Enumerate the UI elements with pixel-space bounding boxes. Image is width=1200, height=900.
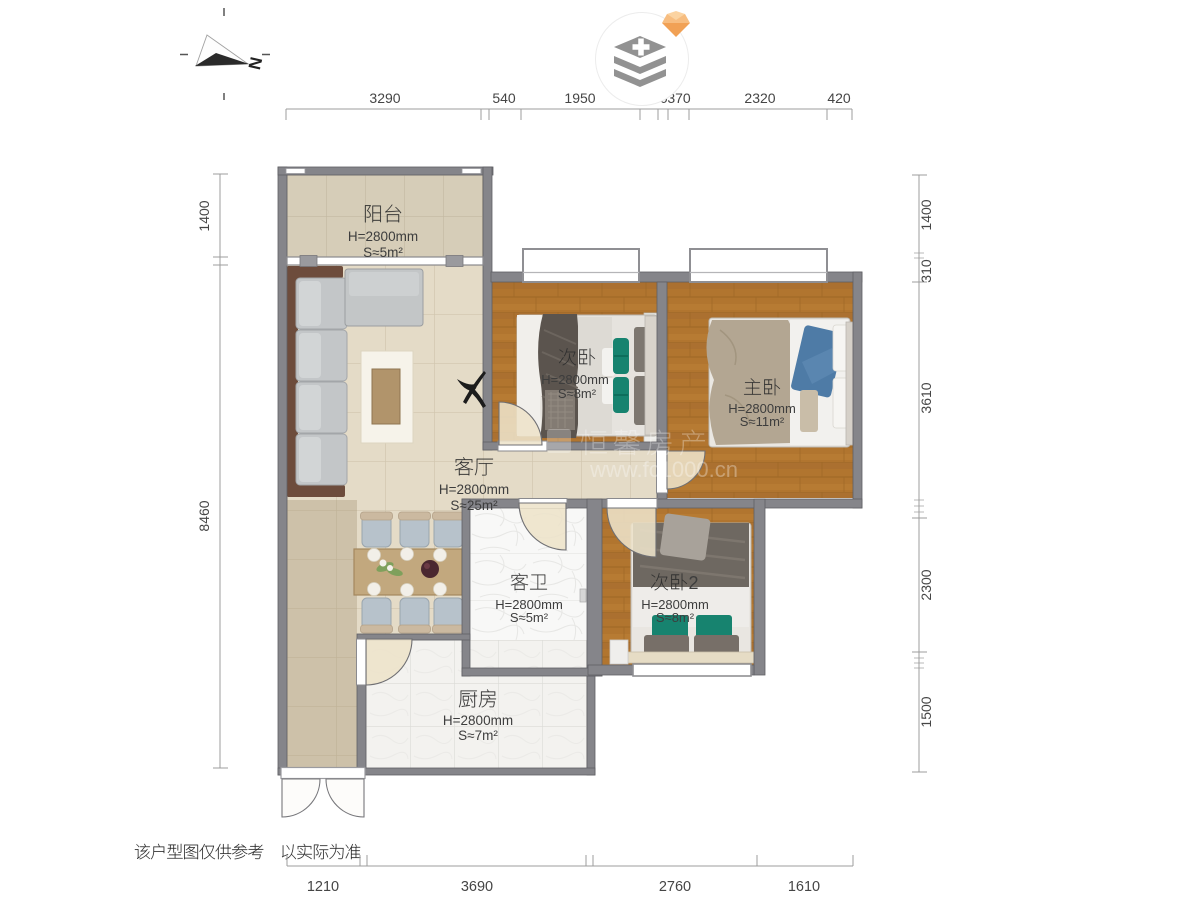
svg-text:www.fc1000.cn: www.fc1000.cn xyxy=(589,457,738,482)
svg-text:H=2800mm: H=2800mm xyxy=(348,229,418,244)
svg-text:2: 2 xyxy=(689,573,699,593)
svg-text:S≈25m²: S≈25m² xyxy=(450,498,498,513)
svg-text:S≈7m²: S≈7m² xyxy=(458,728,498,743)
svg-text:1610: 1610 xyxy=(788,879,820,895)
svg-text:3290: 3290 xyxy=(369,90,400,106)
svg-text:1400: 1400 xyxy=(196,200,212,231)
svg-text:2300: 2300 xyxy=(918,569,934,600)
svg-text:2760: 2760 xyxy=(659,879,691,895)
svg-text:2320: 2320 xyxy=(744,90,775,106)
svg-text:420: 420 xyxy=(827,90,851,106)
svg-text:1500: 1500 xyxy=(918,696,934,727)
svg-text:H=2800mm: H=2800mm xyxy=(541,372,609,387)
svg-text:3690: 3690 xyxy=(461,879,493,895)
svg-text:S≈5m²: S≈5m² xyxy=(510,610,549,625)
svg-text:S≈8m²: S≈8m² xyxy=(656,610,695,625)
svg-text:310: 310 xyxy=(918,259,934,283)
svg-text:8460: 8460 xyxy=(196,500,212,531)
svg-text:540: 540 xyxy=(492,90,516,106)
svg-text:S≈11m²: S≈11m² xyxy=(740,414,785,429)
svg-text:1400: 1400 xyxy=(918,199,934,230)
svg-text:H=2800mm: H=2800mm xyxy=(443,713,513,728)
svg-text:1210: 1210 xyxy=(307,879,339,895)
svg-text:1950: 1950 xyxy=(564,90,595,106)
svg-text:S≈8m²: S≈8m² xyxy=(558,386,597,401)
svg-text:S≈5m²: S≈5m² xyxy=(363,245,403,260)
svg-text:H=2800mm: H=2800mm xyxy=(439,482,509,497)
svg-text:3610: 3610 xyxy=(918,382,934,413)
